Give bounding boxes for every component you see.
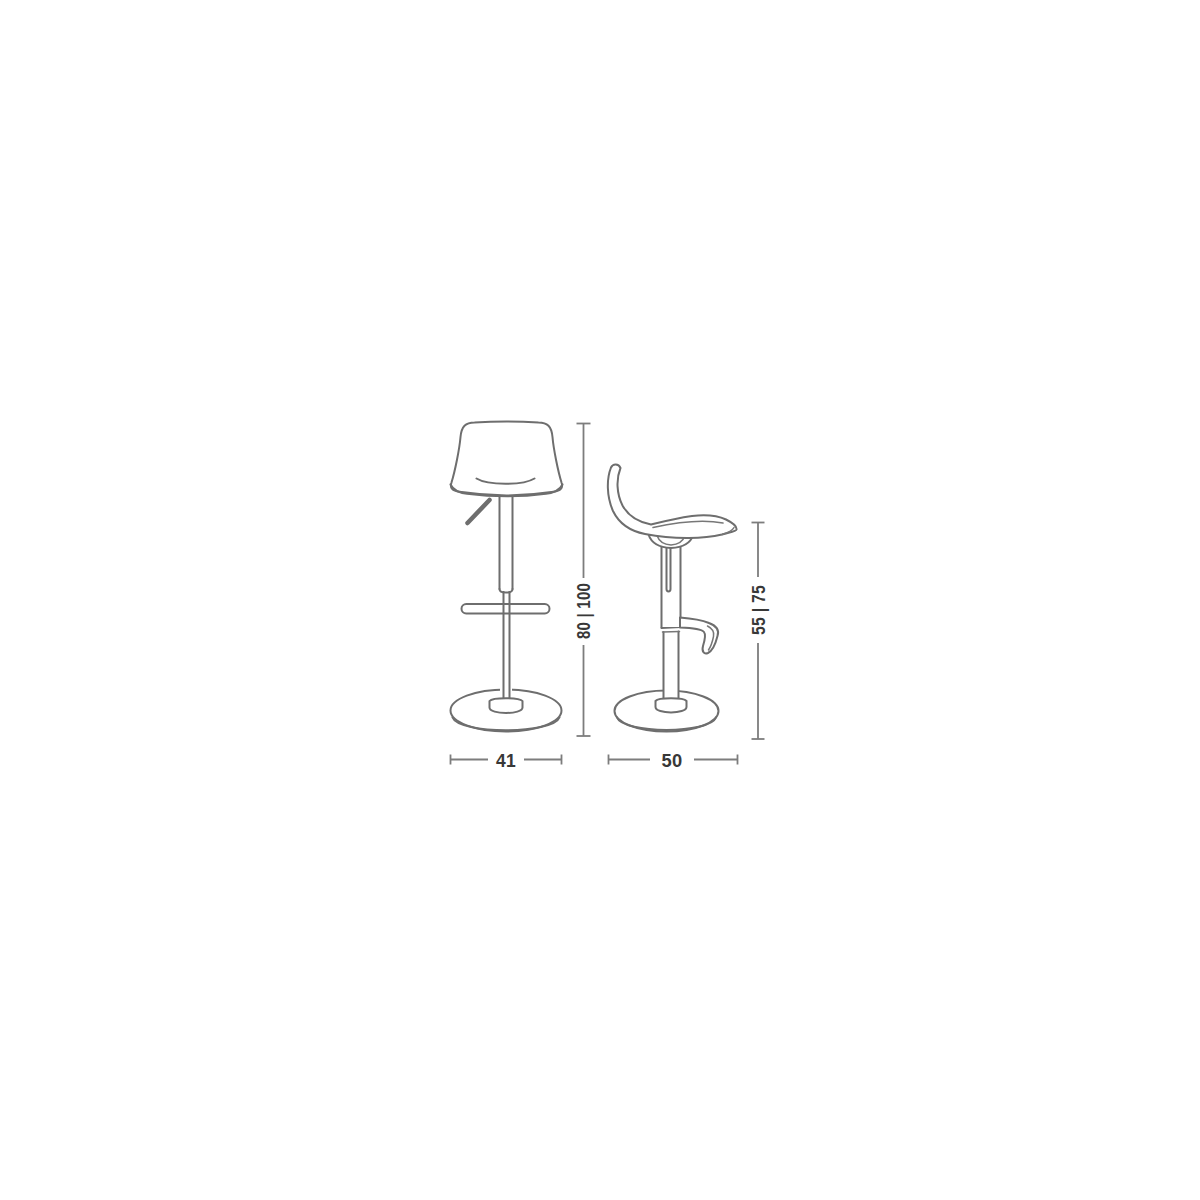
seat-height-dimension: 55 | 75 [748, 523, 769, 740]
stool-side-view [608, 464, 737, 731]
column-upper-front [500, 495, 513, 593]
depth-label: 50 [662, 750, 683, 771]
width-dimension: 41 [451, 750, 562, 771]
base-collar-front [490, 698, 523, 713]
stool-dimension-diagram: 80 | 100 55 | 75 41 50 [0, 0, 1200, 1200]
base-collar-side [656, 698, 687, 712]
seat-front [451, 422, 563, 497]
seat-side [608, 464, 737, 538]
seat-height-label: 55 | 75 [748, 585, 769, 635]
depth-dimension: 50 [609, 750, 738, 771]
lever-front [468, 500, 490, 523]
diagram-canvas: 80 | 100 55 | 75 41 50 [0, 0, 1200, 1200]
footrest-front [462, 604, 550, 614]
gas-lift-rod [667, 547, 671, 591]
column-base-cover-side [663, 657, 679, 704]
width-label: 41 [496, 750, 516, 771]
column-joint-side [662, 627, 681, 632]
overall-height-dimension: 80 | 100 [573, 424, 594, 737]
stool-front-view [451, 422, 563, 732]
footrest-side [680, 618, 718, 654]
overall-height-label: 80 | 100 [573, 583, 594, 639]
